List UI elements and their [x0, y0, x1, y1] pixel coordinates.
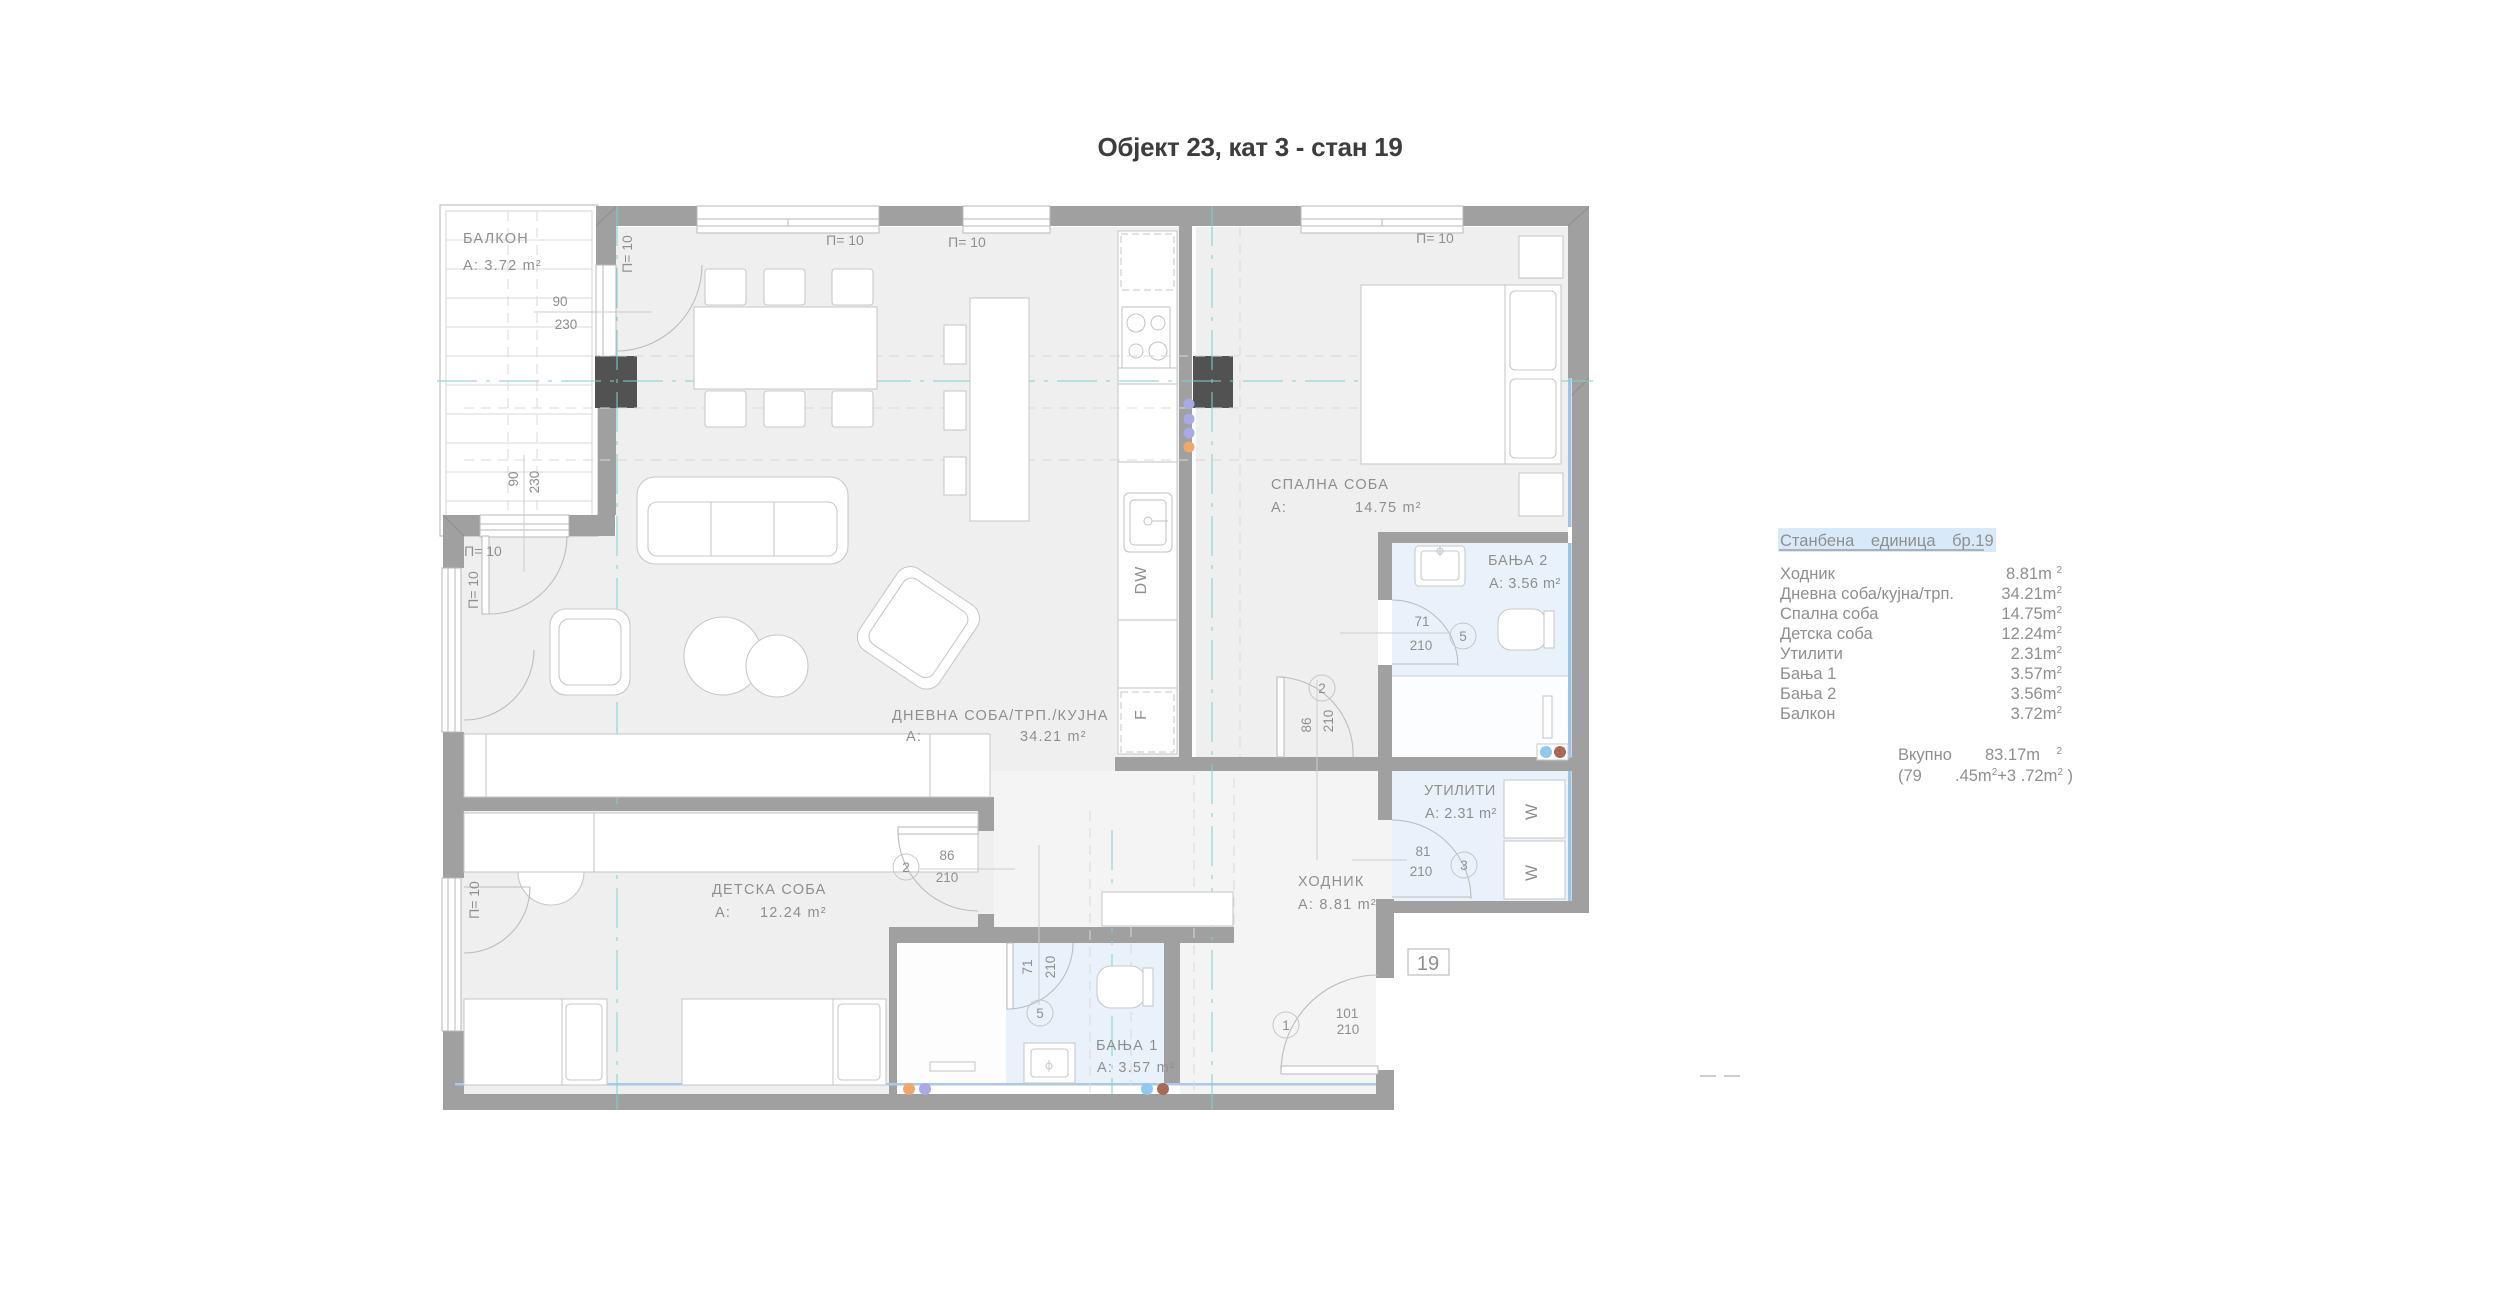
- svg-text:(79: (79: [1898, 767, 1922, 785]
- svg-text:П= 10: П= 10: [466, 881, 482, 919]
- svg-text:A: 3.57 m²: A: 3.57 m²: [1097, 1060, 1176, 1076]
- svg-text:210: 210: [1043, 956, 1058, 979]
- svg-text:34.21m2: 34.21m2: [2001, 585, 2062, 603]
- svg-text:230: 230: [555, 317, 578, 332]
- svg-text:2: 2: [1318, 681, 1326, 696]
- svg-text:Вкупно: Вкупно: [1898, 746, 1952, 764]
- svg-text:3: 3: [1460, 858, 1468, 873]
- svg-text:.45m2+3 .72m2 ): .45m2+3 .72m2 ): [1955, 767, 2073, 785]
- svg-text:Детска соба: Детска соба: [1780, 625, 1873, 643]
- svg-text:5: 5: [1036, 1006, 1044, 1021]
- svg-text:2.31m2: 2.31m2: [2011, 645, 2063, 663]
- svg-text:УТИЛИТИ: УТИЛИТИ: [1424, 783, 1496, 799]
- svg-text:П= 10: П= 10: [948, 234, 986, 250]
- svg-text:A: 3.56 m²: A: 3.56 m²: [1489, 576, 1561, 592]
- svg-text:14.75 m²: 14.75 m²: [1355, 500, 1422, 516]
- svg-text:71: 71: [1414, 614, 1429, 629]
- svg-text:90: 90: [552, 294, 567, 309]
- svg-text:210: 210: [1410, 638, 1433, 653]
- svg-text:П= 10: П= 10: [464, 543, 502, 559]
- svg-text:81: 81: [1415, 844, 1430, 859]
- svg-text:Утилити: Утилити: [1780, 645, 1843, 663]
- svg-text:A: 3.72 m²: A: 3.72 m²: [463, 258, 542, 274]
- svg-text:W: W: [1522, 804, 1541, 820]
- svg-text:F: F: [1133, 710, 1150, 720]
- svg-text:A: 2.31 m²: A: 2.31 m²: [1425, 806, 1497, 822]
- svg-text:210: 210: [936, 870, 959, 885]
- svg-text:71: 71: [1020, 959, 1035, 974]
- svg-text:ДЕТСКА СОБА: ДЕТСКА СОБА: [712, 882, 826, 898]
- svg-text:86: 86: [939, 848, 954, 863]
- svg-text:230: 230: [527, 471, 542, 494]
- svg-text:ХОДНИК: ХОДНИК: [1298, 874, 1365, 890]
- svg-text:1: 1: [1282, 1018, 1290, 1033]
- svg-text:A:: A:: [906, 729, 922, 745]
- svg-text:БАЊА 1: БАЊА 1: [1096, 1038, 1158, 1054]
- svg-text:3.57m2: 3.57m2: [2011, 665, 2063, 683]
- svg-text:5: 5: [1459, 629, 1467, 644]
- svg-text:90: 90: [506, 471, 521, 486]
- svg-text:БАЛКОН: БАЛКОН: [463, 231, 529, 247]
- svg-text:12.24m2: 12.24m2: [2001, 625, 2062, 643]
- svg-text:12.24 m²: 12.24 m²: [760, 905, 827, 921]
- svg-text:Објект 23, кат 3 - стан 19: Објект 23, кат 3 - стан 19: [1097, 132, 1402, 162]
- svg-text:A:: A:: [715, 905, 731, 921]
- svg-text:14.75m2: 14.75m2: [2001, 605, 2062, 623]
- svg-text:A: 8.81 m²: A: 8.81 m²: [1298, 897, 1377, 913]
- svg-text:П= 10: П= 10: [826, 232, 864, 248]
- svg-text:19: 19: [1417, 953, 1439, 975]
- svg-text:Станбена единица бр.19: Станбена единица бр.19: [1780, 532, 1994, 550]
- svg-text:Балкон: Балкон: [1780, 705, 1835, 723]
- svg-text:DW: DW: [1133, 566, 1150, 595]
- svg-text:Бања 2: Бања 2: [1780, 685, 1836, 703]
- svg-text:Ходник: Ходник: [1780, 565, 1836, 583]
- svg-text:34.21 m²: 34.21 m²: [1020, 729, 1087, 745]
- svg-text:2: 2: [2056, 746, 2062, 757]
- svg-text:Дневна соба/кујна/трп.: Дневна соба/кујна/трп.: [1780, 585, 1954, 603]
- svg-text:П= 10: П= 10: [619, 235, 635, 273]
- svg-text:Спална соба: Спална соба: [1780, 605, 1879, 623]
- svg-text:2: 2: [902, 860, 910, 875]
- svg-text:101: 101: [1336, 1006, 1359, 1021]
- svg-text:W: W: [1522, 865, 1541, 881]
- svg-text:П= 10: П= 10: [1416, 230, 1454, 246]
- svg-text:П= 10: П= 10: [465, 571, 481, 609]
- svg-text:3.72m2: 3.72m2: [2011, 705, 2063, 723]
- svg-text:3.56m2: 3.56m2: [2011, 685, 2063, 703]
- svg-text:ДНЕВНА СОБА/ТРП./КУЈНА: ДНЕВНА СОБА/ТРП./КУЈНА: [892, 708, 1109, 724]
- svg-text:86: 86: [1299, 717, 1314, 732]
- svg-text:Бања 1: Бања 1: [1780, 665, 1836, 683]
- svg-text:210: 210: [1321, 710, 1336, 733]
- svg-text:8.81m 2: 8.81m 2: [2006, 565, 2062, 583]
- svg-text:БАЊА 2: БАЊА 2: [1488, 553, 1548, 569]
- svg-text:83.17m: 83.17m: [1985, 746, 2040, 764]
- svg-text:A:: A:: [1271, 500, 1287, 516]
- svg-text:210: 210: [1337, 1022, 1360, 1037]
- svg-text:210: 210: [1410, 864, 1433, 879]
- svg-text:СПАЛНА СОБА: СПАЛНА СОБА: [1271, 477, 1389, 493]
